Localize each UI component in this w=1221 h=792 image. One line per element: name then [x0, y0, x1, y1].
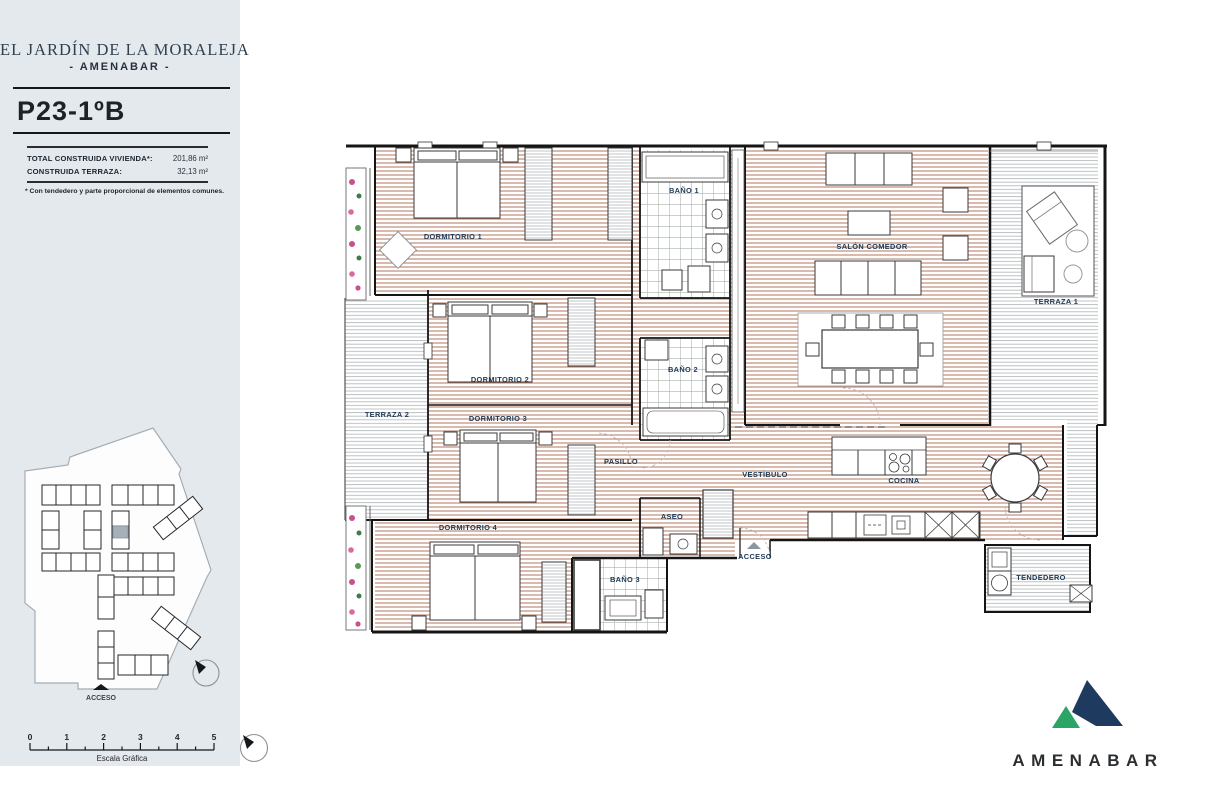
area-footnote: * Con tendedero y parte proporcional de …	[25, 188, 225, 195]
terraza1-furniture	[1022, 186, 1094, 296]
room-label-aseo: ASEO	[661, 512, 683, 521]
room-label-cocina: COCINA	[888, 476, 920, 485]
room-label-pasillo: PASILLO	[604, 457, 638, 466]
project-title: EL JARDÍN DE LA MORALEJA	[0, 40, 240, 60]
divider	[13, 132, 230, 134]
amenabar-logo: AMENABAR	[1000, 668, 1175, 776]
unit-code: P23-1ºB	[17, 96, 125, 127]
north-compass-icon	[238, 730, 272, 766]
scale-tick-label: 2	[101, 732, 106, 742]
scale-caption: Escala Gráfica	[97, 754, 148, 763]
terraza2-floor	[345, 298, 428, 520]
room-label-vestibulo: VESTÍBULO	[742, 470, 787, 479]
access-arrow-icon	[747, 542, 761, 549]
scale-bar: 0 1 2 3 4 5 Escala Gráfica	[22, 731, 222, 763]
floor-plan: DORMITORIO 1 BAÑO 1 SALÓN COMEDOR TERRAZ…	[340, 138, 1120, 640]
room-label-terraza-1: TERRAZA 1	[1034, 297, 1078, 306]
area-label: CONSTRUIDA TERRAZA:	[27, 165, 122, 178]
room-label-dormitorio-1: DORMITORIO 1	[424, 232, 482, 241]
area-table: TOTAL CONSTRUIDA VIVIENDA*: 201,86 m² CO…	[27, 146, 208, 183]
north-compass-icon	[193, 660, 219, 686]
logo-wordmark: AMENABAR	[1012, 751, 1163, 770]
area-row-vivienda: TOTAL CONSTRUIDA VIVIENDA*: 201,86 m²	[27, 152, 208, 165]
bed-dormitorio-4	[412, 542, 536, 630]
room-label-dormitorio-2: DORMITORIO 2	[471, 375, 529, 384]
room-label-dormitorio-4: DORMITORIO 4	[439, 523, 498, 532]
wardrobe	[568, 445, 595, 515]
entry-closet	[703, 490, 733, 538]
divider	[13, 87, 230, 89]
scale-tick-label: 5	[212, 732, 217, 742]
room-label-dormitorio-3: DORMITORIO 3	[469, 414, 527, 423]
scale-tick-label: 3	[138, 732, 143, 742]
bed-dormitorio-2	[433, 302, 547, 382]
site-access-label: ACCESO	[86, 695, 117, 702]
bed-dormitorio-3	[444, 430, 552, 502]
sidebar: EL JARDÍN DE LA MORALEJA - AMENABAR - P2…	[0, 0, 240, 766]
area-value: 201,86 m²	[173, 152, 208, 165]
wardrobe	[542, 562, 566, 622]
room-label-bano-1: BAÑO 1	[669, 186, 699, 195]
scale-tick-label: 0	[28, 732, 33, 742]
brand-line: - AMENABAR -	[0, 61, 240, 73]
room-label-salon-comedor: SALÓN COMEDOR	[836, 242, 907, 251]
area-value: 32,13 m²	[177, 165, 208, 178]
scale-tick-label: 1	[64, 732, 69, 742]
room-label-terraza-2: TERRAZA 2	[365, 410, 409, 419]
room-label-tendedero: TENDEDERO	[1016, 573, 1066, 582]
site-key-plan: ACCESO	[18, 423, 228, 708]
access-label: ACCESO	[738, 552, 772, 561]
scale-tick-label: 4	[175, 732, 180, 742]
bed-dormitorio-1	[396, 148, 518, 218]
site-highlighted-unit	[113, 526, 128, 538]
room-label-bano-2: BAÑO 2	[668, 365, 698, 374]
room-label-bano-3: BAÑO 3	[610, 575, 640, 584]
wardrobe	[608, 148, 632, 240]
wardrobe	[525, 148, 552, 240]
logo-mountain-navy-icon	[1072, 680, 1123, 726]
kitchen-island	[832, 437, 926, 475]
kitchen-counter	[808, 512, 980, 538]
wardrobe	[568, 298, 595, 366]
scale-ruler	[30, 743, 214, 750]
floorplan-sheet: EL JARDÍN DE LA MORALEJA - AMENABAR - P2…	[0, 0, 1221, 792]
area-row-terraza: CONSTRUIDA TERRAZA: 32,13 m²	[27, 165, 208, 178]
area-label: TOTAL CONSTRUIDA VIVIENDA*:	[27, 152, 153, 165]
